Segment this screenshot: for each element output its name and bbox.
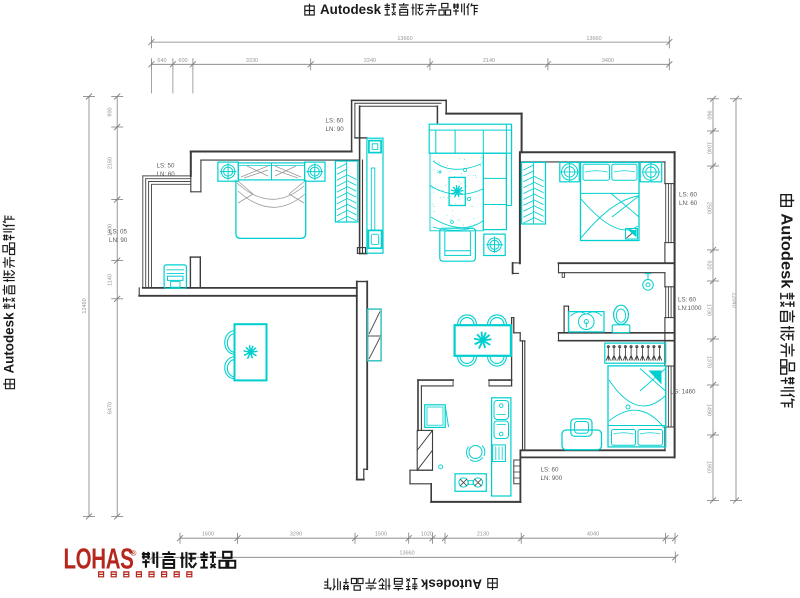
svg-text:2160: 2160 bbox=[108, 157, 114, 169]
svg-text:13660: 13660 bbox=[586, 36, 601, 42]
svg-text:600: 600 bbox=[178, 58, 187, 64]
svg-text:3290: 3290 bbox=[290, 532, 302, 538]
svg-text:4040: 4040 bbox=[587, 532, 599, 538]
svg-text:920: 920 bbox=[706, 260, 712, 269]
svg-text:LN: 60: LN: 60 bbox=[679, 200, 698, 207]
svg-text:1490: 1490 bbox=[706, 404, 712, 416]
svg-text:LG: 1460: LG: 1460 bbox=[670, 389, 696, 396]
svg-text:3330: 3330 bbox=[246, 58, 258, 64]
svg-text:1020: 1020 bbox=[421, 532, 433, 538]
svg-text:LN: 90: LN: 90 bbox=[109, 237, 128, 244]
svg-text:1500: 1500 bbox=[375, 532, 387, 538]
svg-text:1370: 1370 bbox=[706, 356, 712, 368]
svg-text:2240: 2240 bbox=[364, 58, 376, 64]
svg-text:LS: 60: LS: 60 bbox=[678, 297, 696, 304]
svg-text:12460: 12460 bbox=[82, 298, 88, 313]
svg-text:®: ® bbox=[131, 549, 137, 558]
svg-text:LN: 900: LN: 900 bbox=[541, 475, 563, 482]
svg-text:1140: 1140 bbox=[108, 274, 114, 286]
svg-text:12040: 12040 bbox=[731, 292, 737, 307]
svg-text:13660: 13660 bbox=[399, 551, 414, 557]
svg-text:LS: 60: LS: 60 bbox=[679, 192, 697, 199]
svg-text:LS: 05: LS: 05 bbox=[109, 229, 127, 236]
svg-text:640: 640 bbox=[157, 58, 166, 64]
svg-text:LS: 60: LS: 60 bbox=[541, 467, 559, 474]
svg-text:LN: 60: LN: 60 bbox=[157, 171, 176, 178]
svg-text:3400: 3400 bbox=[602, 58, 614, 64]
svg-text:1600: 1600 bbox=[202, 532, 214, 538]
svg-text:1950: 1950 bbox=[706, 461, 712, 473]
svg-text:2140: 2140 bbox=[483, 58, 495, 64]
svg-text:960: 960 bbox=[706, 110, 712, 119]
svg-text:LOHAS: LOHAS bbox=[64, 544, 134, 575]
svg-text:900: 900 bbox=[108, 107, 114, 116]
svg-text:1040: 1040 bbox=[706, 142, 712, 154]
svg-text:2500: 2500 bbox=[706, 202, 712, 214]
svg-text:13660: 13660 bbox=[397, 36, 412, 42]
svg-text:LS: 60: LS: 60 bbox=[326, 118, 344, 125]
svg-text:LS: 50: LS: 50 bbox=[157, 163, 175, 170]
svg-text:LN: 90: LN: 90 bbox=[326, 126, 345, 133]
svg-text:LN:1000: LN:1000 bbox=[678, 305, 702, 312]
svg-text:2130: 2130 bbox=[477, 532, 489, 538]
svg-text:6470: 6470 bbox=[108, 402, 114, 414]
svg-text:1730: 1730 bbox=[706, 304, 712, 316]
